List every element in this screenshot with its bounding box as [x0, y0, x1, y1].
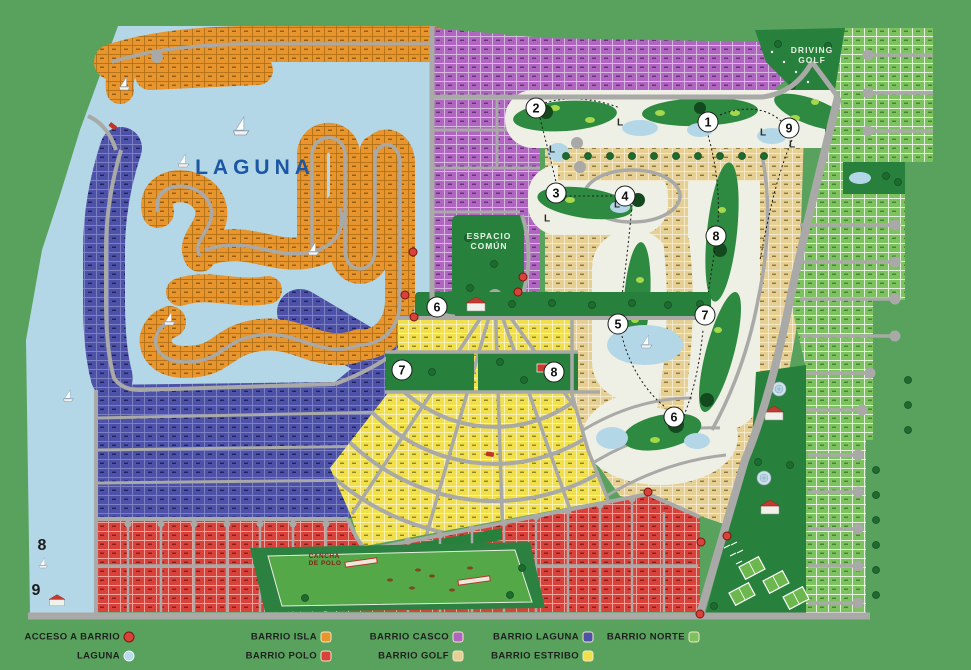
legend-swatch — [321, 651, 332, 662]
polo-field — [250, 542, 545, 612]
legend-label: BARRIO POLO — [246, 651, 317, 662]
legend-label: BARRIO LAGUNA — [493, 632, 579, 643]
legend-label: ACCESO A BARRIO — [24, 632, 120, 643]
site-map: LAGUNA ESPACIO COMÚN DRIVING GOLF CANCHA… — [0, 0, 971, 670]
legend-swatch — [124, 651, 135, 662]
legend-label: BARRIO NORTE — [607, 632, 685, 643]
legend-label: BARRIO ESTRIBO — [491, 651, 579, 662]
legend-swatch — [689, 632, 700, 643]
legend-label: BARRIO ISLA — [251, 632, 317, 643]
legend-swatch — [583, 632, 594, 643]
legend-swatch — [583, 651, 594, 662]
legend-label: BARRIO CASCO — [370, 632, 449, 643]
legend-swatch — [453, 632, 464, 643]
legend-swatch — [453, 651, 464, 662]
legend-label: BARRIO GOLF — [378, 651, 449, 662]
legend-swatch — [321, 632, 332, 643]
map-graphic — [0, 0, 971, 670]
legend-label: LAGUNA — [77, 651, 120, 662]
legend-swatch — [124, 632, 135, 643]
